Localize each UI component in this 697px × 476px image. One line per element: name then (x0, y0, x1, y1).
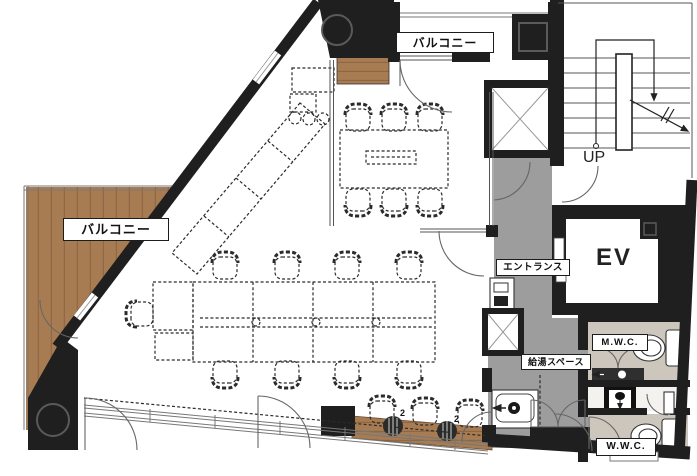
up-label: UP (583, 150, 605, 166)
meeting-table-upper (340, 130, 448, 188)
plant-count-label: 2 (454, 415, 459, 424)
pantry-dashed (289, 68, 334, 125)
ev-label: EV (596, 246, 632, 270)
floor-plan: バルコニー バルコニー UP EV エントランス 給湯スペース M.W.C. W… (0, 0, 697, 476)
wc-sink-counter (592, 368, 644, 381)
chairs-upper-table (345, 104, 443, 216)
storage-counter-diagonal (172, 103, 325, 274)
balcony-top-label: バルコニー (396, 32, 494, 53)
wood-strip-top (337, 57, 389, 84)
mens-wc-label: M.W.C. (592, 334, 648, 351)
staircase (558, 3, 692, 178)
chairs-main-table (126, 252, 422, 388)
entrance-label: エントランス (496, 259, 570, 276)
womens-wc-label: W.W.C. (596, 438, 656, 456)
intercom-panel (490, 278, 514, 310)
balcony-left-label: バルコニー (63, 218, 169, 241)
conference-table-main (153, 282, 435, 362)
plant-count-label: 2 (400, 409, 405, 418)
kitchenette-label: 給湯スペース (521, 354, 591, 370)
